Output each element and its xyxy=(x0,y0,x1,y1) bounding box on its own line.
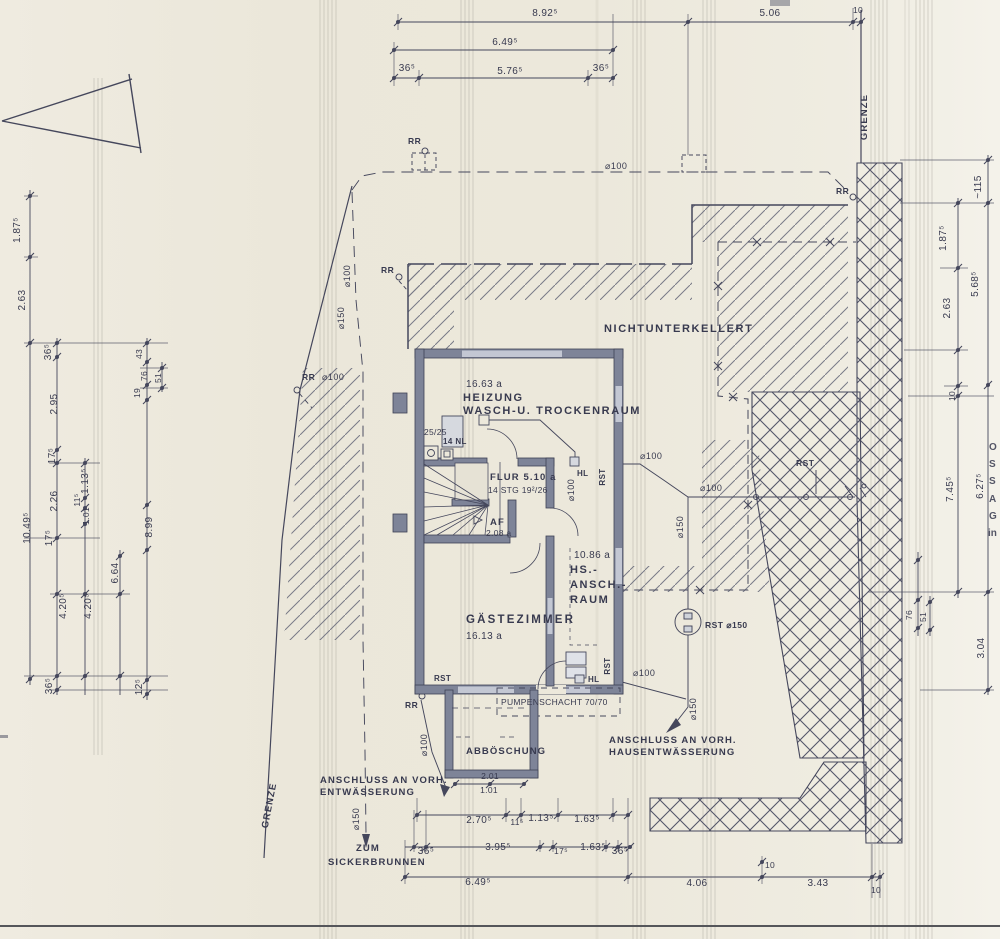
dim-label: 17⁵ xyxy=(47,448,58,464)
dim-label: 43 xyxy=(134,349,144,359)
site-plan-drawing: 8.92⁵ 5.06 10 6.49⁵ 36⁵ 5.76⁵ 36⁵ 1.87⁵ … xyxy=(0,0,1000,939)
room-area-hs: 10.86 a xyxy=(574,550,610,561)
d150-label: ⌀150 xyxy=(688,698,698,720)
dim-label: 36⁵ xyxy=(418,846,434,857)
stamp-letter: in xyxy=(988,528,997,539)
dim-label: 6.49⁵ xyxy=(492,37,518,48)
d150-label: ⌀150 xyxy=(351,808,361,830)
rst-label: RST xyxy=(598,468,607,485)
rr-label: RR xyxy=(405,700,418,710)
d100-label: ⌀100 xyxy=(566,479,576,501)
dim-label: 3.43 xyxy=(807,878,828,889)
rr-label: RR xyxy=(381,265,394,275)
dim-label: 6.64 xyxy=(110,562,121,583)
dim-label: 1.13⁵ xyxy=(528,813,554,824)
dim-label: 11⁵ xyxy=(510,817,523,827)
d150-label: ⌀150 xyxy=(675,516,685,538)
grenze-right-label: GRENZE xyxy=(859,94,870,140)
dim-label: 1.87⁵ xyxy=(938,225,949,251)
dim-label: 1.87⁵ xyxy=(12,217,23,243)
slope-label: ABBÖSCHUNG xyxy=(466,746,546,757)
dim-label: 6.27⁵ xyxy=(975,473,986,499)
stamp-letter: G xyxy=(989,511,997,522)
room-area-af: 2.08 a xyxy=(486,528,511,538)
dim-label: 1.13⁵ xyxy=(80,468,91,494)
rr-label: RR xyxy=(408,136,421,146)
pump-shaft-label: PUMPENSCHACHT 70/70 xyxy=(501,697,608,707)
dim-label: 4.06 xyxy=(686,878,707,889)
dim-label: 10 xyxy=(947,391,957,401)
chimney-sub-label: 14 NL xyxy=(443,437,467,446)
d100-label: ⌀100 xyxy=(700,483,722,493)
dim-label: 36⁵ xyxy=(399,63,415,74)
chimney-and-fixtures xyxy=(424,415,600,683)
dim-label: 1.01 xyxy=(81,507,91,525)
rst-label: RST xyxy=(434,674,451,683)
dim-label: 3.95⁵ xyxy=(485,842,511,853)
stair-winder xyxy=(424,462,500,535)
chimney-label: 25/25 xyxy=(424,427,447,437)
room-name-af: AF xyxy=(490,517,505,528)
dim-label: 1.63⁵ xyxy=(574,814,600,825)
d100-label: ⌀100 xyxy=(322,372,344,382)
room-name-hs-3: RAUM xyxy=(570,594,609,606)
d100-label: ⌀100 xyxy=(419,734,429,756)
dim-label: 76 xyxy=(904,610,914,620)
dim-label: 10.49⁵ xyxy=(22,512,33,544)
sickerbrunnen-label: SICKERBRUNNEN xyxy=(328,857,426,868)
dim-label: 2.95 xyxy=(49,393,60,414)
dim-label: 17⁵ xyxy=(554,846,568,856)
dim-label: 1.63⁵ xyxy=(580,842,606,853)
dim-label: 2.63 xyxy=(942,297,953,318)
dim-label: 11⁵ xyxy=(72,493,82,506)
dim-label: 36⁵ xyxy=(612,846,628,857)
room-name-gaestezimmer: GÄSTEZIMMER xyxy=(466,613,575,626)
north-arrow-triangle xyxy=(2,74,141,153)
anschluss-haus-2: HAUSENTWÄSSERUNG xyxy=(609,747,735,758)
room-name-heizung: HEIZUNG xyxy=(463,392,524,404)
zum-label: ZUM xyxy=(356,843,380,854)
stamp-letters: O S S A G in xyxy=(988,442,997,539)
dim-label: 2.63 xyxy=(17,289,28,310)
d100-label: ⌀100 xyxy=(633,668,655,678)
dim-label: 6.49⁵ xyxy=(465,877,491,888)
room-area-heizung: 16.63 a xyxy=(466,379,502,390)
dim-label: 2.70⁵ xyxy=(466,815,492,826)
dim-label: 36⁵ xyxy=(44,678,55,694)
dim-label: 51 xyxy=(918,612,928,622)
dim-label: 19 xyxy=(132,388,142,398)
rst-label: RST xyxy=(796,458,815,468)
dim-label: 3.04 xyxy=(976,637,987,658)
dim-label: 2.26 xyxy=(49,490,60,511)
dim-label: 76 xyxy=(139,371,149,381)
room-area-gaestezimmer: 16.13 a xyxy=(466,631,502,642)
stamp-letter: S xyxy=(989,459,996,470)
d100-label: ⌀100 xyxy=(342,265,352,287)
dim-label: 7.45⁵ xyxy=(945,476,956,502)
rr-label: RR xyxy=(836,186,849,196)
dim-label: 10 xyxy=(853,5,863,15)
room-name-hs-1: HS.- xyxy=(570,564,598,576)
anschluss-ent-1: ANSCHLUSS AN VORH. xyxy=(320,775,448,786)
dim-label: 1.01 xyxy=(480,785,498,795)
room-name-flur: FLUR 5.10 a xyxy=(490,472,556,483)
dim-label: 51 xyxy=(153,373,163,383)
grenze-left-label: GRENZE xyxy=(260,782,280,829)
porch-slope-lines xyxy=(452,708,528,737)
dim-label: 36⁵ xyxy=(43,344,54,360)
anschluss-ent-2: ENTWÄSSERUNG xyxy=(320,787,415,798)
stamp-letter: O xyxy=(989,442,997,453)
rst-shaft-label: RST ⌀150 xyxy=(705,620,748,630)
dim-label: 36⁵ xyxy=(593,63,609,74)
room-name-hs-2: ANSCH.- xyxy=(570,579,627,591)
stamp-letter: S xyxy=(989,476,996,487)
rr-label: RR xyxy=(302,372,315,382)
dim-label: 4.20⁵ xyxy=(83,593,94,619)
dim-label: 17⁵ xyxy=(44,530,55,546)
dim-label: 10 xyxy=(765,860,775,870)
dim-label: 8.92⁵ xyxy=(532,8,558,19)
blueprint-sheet: 8.92⁵ 5.06 10 6.49⁵ 36⁵ 5.76⁵ 36⁵ 1.87⁵ … xyxy=(0,0,1000,939)
dim-label: ~115 xyxy=(973,175,984,198)
d100-label: ⌀100 xyxy=(640,451,662,461)
anschluss-haus-1: ANSCHLUSS AN VORH. xyxy=(609,735,737,746)
stairs-label: 14 STG 19²/26 xyxy=(488,485,548,495)
hl-label: HL xyxy=(588,675,599,684)
hl-label: HL xyxy=(577,469,588,478)
dim-label: 12⁵ xyxy=(134,679,145,695)
room-name-heizung-2: WASCH-U. TROCKENRAUM xyxy=(463,405,641,417)
rst-label: RST xyxy=(603,657,612,674)
dim-label: 8.99 xyxy=(144,516,155,537)
dim-label: 2.01 xyxy=(481,771,499,781)
dim-label: 10 xyxy=(871,885,881,895)
dim-label: 5.06 xyxy=(759,8,780,19)
d100-label: ⌀100 xyxy=(605,161,627,171)
dim-label: 5.68⁵ xyxy=(970,271,981,297)
d150-label: ⌀150 xyxy=(336,307,346,329)
stamp-letter: A xyxy=(989,494,996,505)
door-arcs xyxy=(487,429,578,689)
dim-label: 4.20⁵ xyxy=(58,593,69,619)
nichtunterkellert-label: NICHTUNTERKELLERT xyxy=(604,323,753,335)
dim-label: 5.76⁵ xyxy=(497,66,523,77)
